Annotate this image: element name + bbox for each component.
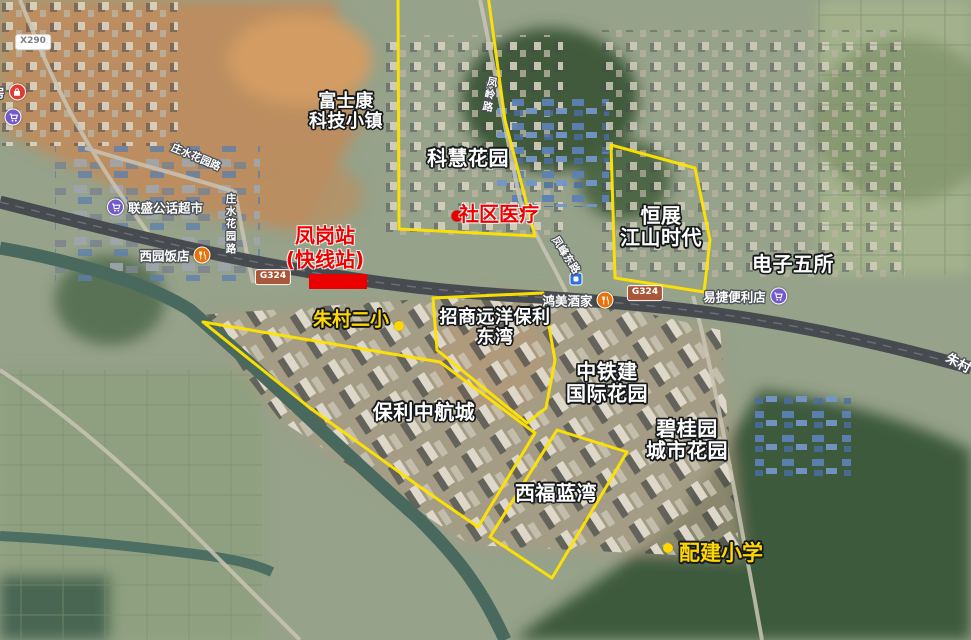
road-badge-g324: G324 — [255, 269, 291, 285]
poi-shop-left-edge[interactable]: 房 — [0, 83, 26, 102]
poi-liansheng-supermarket[interactable]: 联盛公话超市 — [107, 198, 203, 217]
poi-cart-left-edge[interactable] — [5, 109, 22, 126]
estate-label-line: 科技小镇 — [309, 112, 383, 132]
estate-label-line: 碧桂园 — [646, 418, 728, 440]
estate-label-line: 西福蓝湾 — [515, 482, 597, 504]
poi-yijie-store[interactable]: 易捷便利店 — [703, 287, 787, 306]
clinic-label-text: 社区医疗 — [459, 203, 539, 227]
shopping-cart-icon[interactable] — [107, 199, 124, 216]
estate-label-zhaoshang-dongwan: 招商远洋保利 东湾 — [440, 308, 551, 348]
road-label-zhuangshui-huayuan-vertical: 庄水花园路 — [224, 193, 239, 256]
shop-bag-icon[interactable] — [9, 84, 26, 101]
peijian-school-dot — [663, 543, 673, 553]
estate-label-line: 恒展 — [620, 205, 702, 227]
station-label-line: (快线站) — [286, 248, 364, 272]
estate-label-line: 保利中航城 — [373, 401, 476, 423]
estate-label-xifu-lanwan: 西福蓝湾 — [515, 482, 597, 504]
shopping-cart-icon[interactable] — [5, 109, 22, 126]
estate-label-line: 招商远洋保利 — [440, 308, 551, 328]
poi-hongmei-restaurant[interactable]: 鸿美酒家 — [542, 291, 613, 310]
restaurant-icon[interactable] — [597, 292, 614, 309]
poi-xiyuan-restaurant[interactable]: 西园饭店 — [139, 246, 210, 265]
estate-label-line: 电子五所 — [752, 253, 834, 275]
poi-label[interactable]: 房 — [0, 83, 5, 102]
estate-label-kehui-garden: 科慧花园 — [427, 147, 509, 169]
zhucun-school-dot — [394, 321, 404, 331]
station-label: 凤岗站 (快线站) — [286, 224, 364, 271]
estate-label-hengzhan-jiangshan-era: 恒展 江山时代 — [620, 205, 702, 250]
poi-label[interactable]: 联盛公话超市 — [128, 198, 203, 217]
road-badge-x290: X290 — [15, 34, 51, 50]
poi-label[interactable]: 易捷便利店 — [703, 287, 766, 306]
estate-label-fushikang-tech-town: 富士康 科技小镇 — [309, 92, 383, 132]
restaurant-icon[interactable] — [194, 247, 211, 264]
peijian-school-label: 配建小学 — [679, 537, 763, 567]
poi-label[interactable]: 西园饭店 — [139, 246, 189, 265]
estate-label-line: 东湾 — [440, 328, 551, 348]
estate-label-baoli-zhonghang-city: 保利中航城 — [373, 401, 476, 423]
station-red-rect — [309, 274, 367, 289]
estate-label-line: 中铁建 — [566, 361, 648, 383]
road-badge-g324: G324 — [627, 285, 663, 301]
estate-label-biguiyuan-city-garden: 碧桂园 城市花园 — [646, 418, 728, 463]
estate-label-line: 科慧花园 — [427, 147, 509, 169]
estate-label-line: 国际花园 — [566, 383, 648, 405]
estate-label-line: 江山时代 — [620, 227, 702, 249]
shopping-cart-icon[interactable] — [770, 288, 787, 305]
estate-label-line: 富士康 — [309, 92, 383, 112]
station-label-line: 凤岗站 — [286, 224, 364, 248]
estate-label-line: 城市花园 — [646, 440, 728, 462]
satellite-map-canvas[interactable]: 富士康 科技小镇 科慧花园 恒展 江山时代 电子五所 招商远洋保利 东湾 中铁建… — [0, 0, 971, 640]
estate-label-zhongtiejian-intl-garden: 中铁建 国际花园 — [566, 361, 648, 406]
estate-label-electronics-fifth-institute: 电子五所 — [752, 253, 834, 275]
clinic-label: 社区医疗 — [459, 203, 539, 227]
poi-label[interactable]: 鸿美酒家 — [542, 291, 592, 310]
zhucun-school-label: 朱村二小 — [313, 305, 389, 332]
